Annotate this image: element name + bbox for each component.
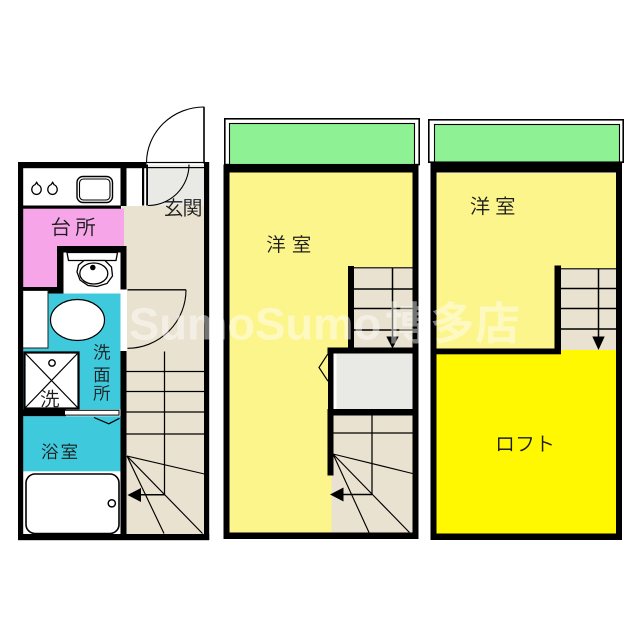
svg-text:SumoSumo: SumoSumo [129, 299, 381, 350]
